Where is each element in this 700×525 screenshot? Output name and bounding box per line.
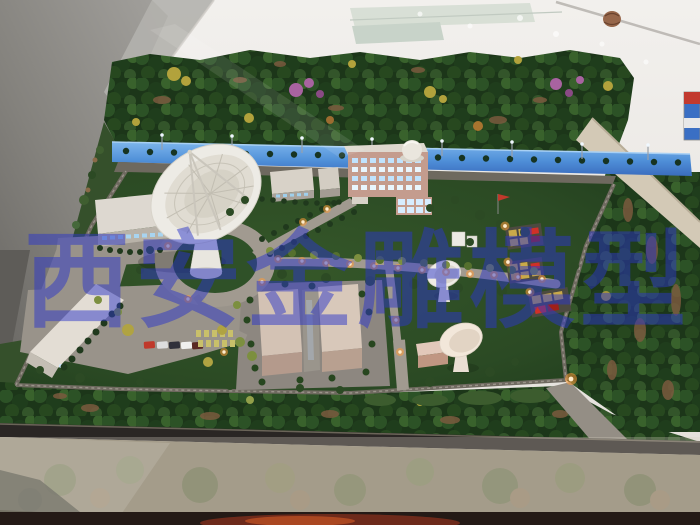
foreground bbox=[0, 423, 700, 525]
office-entrance bbox=[352, 197, 368, 204]
roof-radome bbox=[402, 140, 422, 160]
warehouse-a bbox=[258, 289, 302, 376]
bottom-reflection bbox=[0, 512, 700, 525]
warehouse-b bbox=[318, 284, 362, 372]
foreground-haze bbox=[0, 437, 700, 517]
model-photograph: 西 安 金 雕 模 型 bbox=[0, 0, 700, 525]
equipment-cabinet bbox=[452, 232, 465, 246]
support-building-2 bbox=[270, 167, 340, 202]
colored-sign bbox=[684, 92, 700, 140]
scene bbox=[0, 0, 700, 525]
